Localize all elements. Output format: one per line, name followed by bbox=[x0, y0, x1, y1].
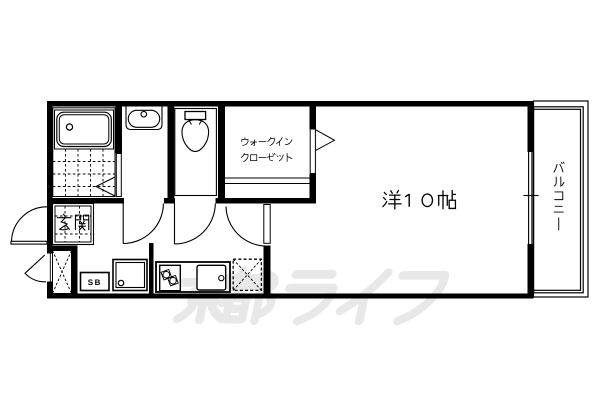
svg-text:SB: SB bbox=[88, 278, 102, 287]
